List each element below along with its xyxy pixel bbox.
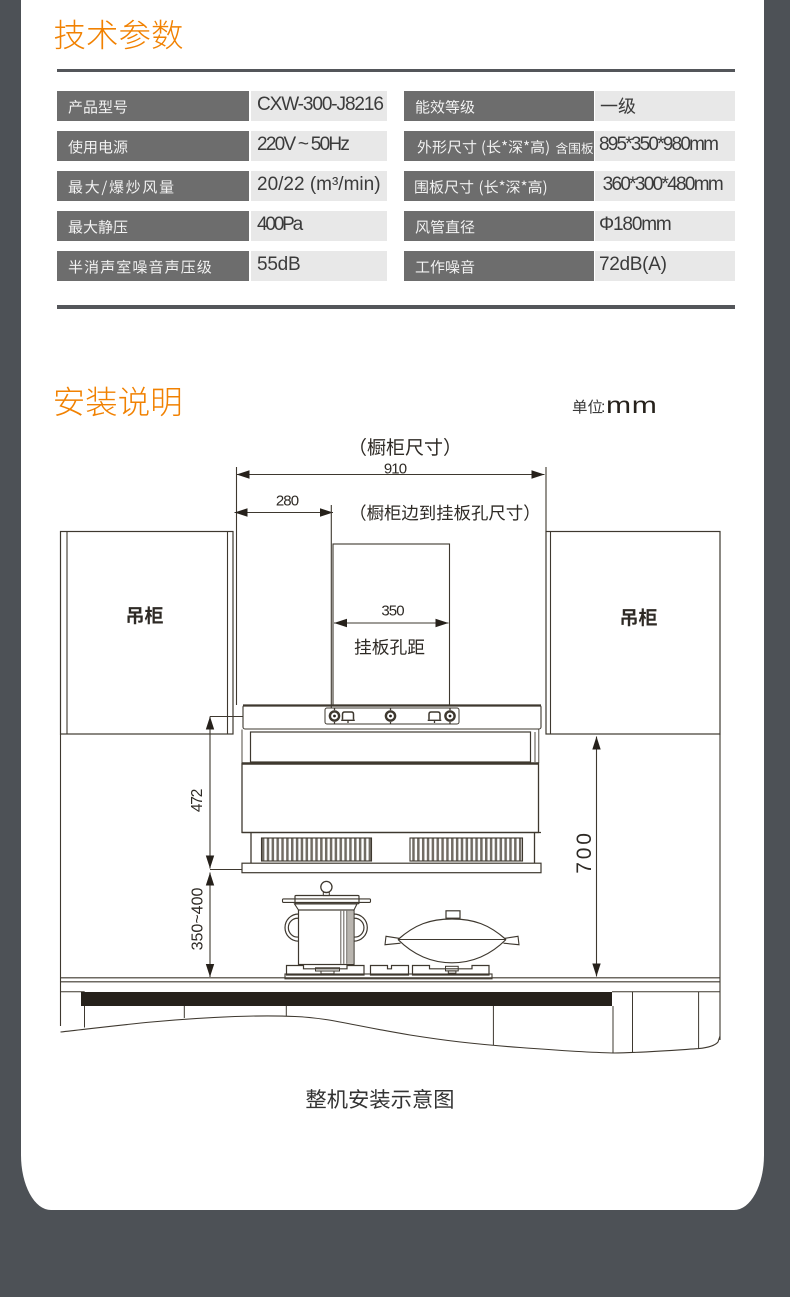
svg-text:280: 280	[276, 492, 299, 509]
svg-text:mm: mm	[606, 392, 657, 418]
svg-text::: :	[601, 399, 605, 416]
svg-text:350: 350	[381, 603, 404, 620]
svg-text:350~400: 350~400	[189, 888, 206, 951]
svg-text:700: 700	[573, 830, 596, 873]
svg-text:472: 472	[189, 789, 206, 812]
